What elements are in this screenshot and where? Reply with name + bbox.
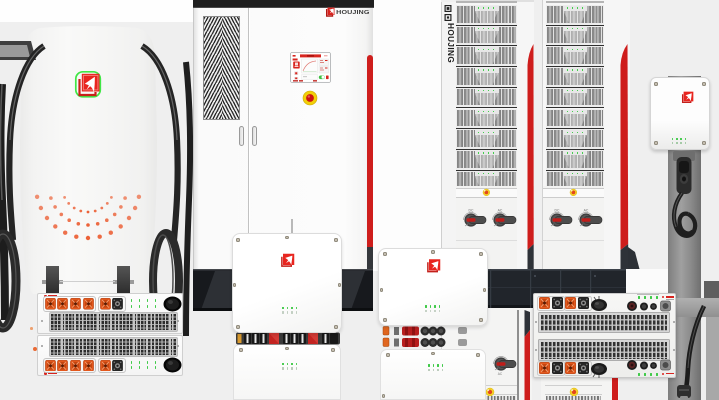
svg-text:HOUJING: HOUJING [446, 23, 455, 63]
svg-text:DC: DC [469, 209, 474, 213]
svg-text:HOUJING: HOUJING [336, 10, 369, 16]
svg-text:DC: DC [555, 209, 560, 213]
svg-text:AC: AC [584, 209, 589, 213]
svg-text:AC: AC [498, 209, 503, 213]
